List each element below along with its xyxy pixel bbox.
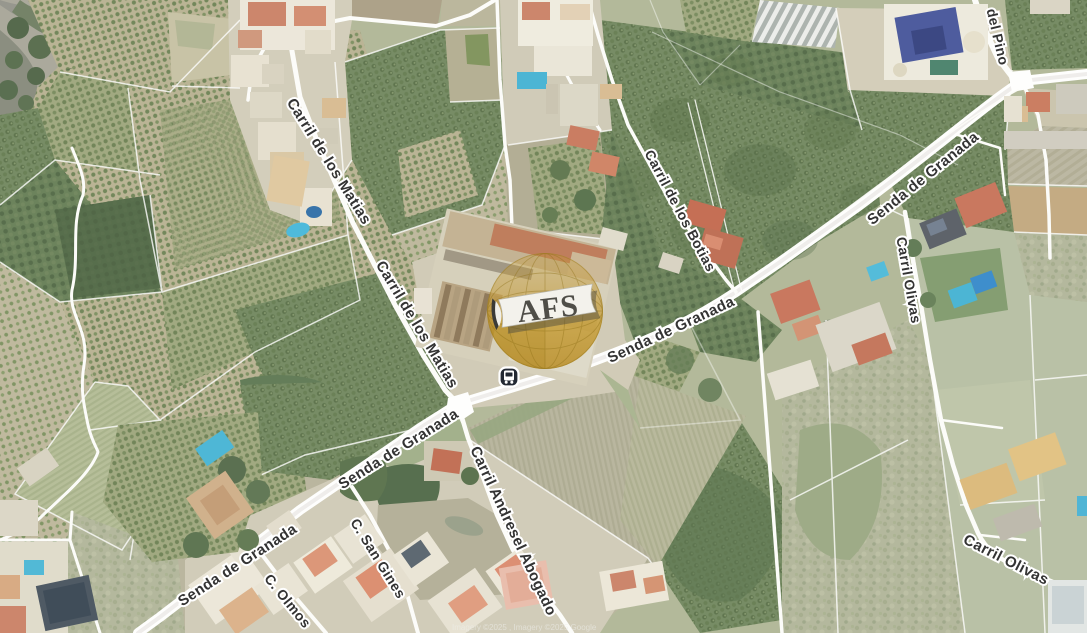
svg-text:Imagery ©2025 , Imagery ©2025: Imagery ©2025 , Imagery ©2025 Google [452,623,597,632]
svg-text:AFS: AFS [515,287,580,329]
